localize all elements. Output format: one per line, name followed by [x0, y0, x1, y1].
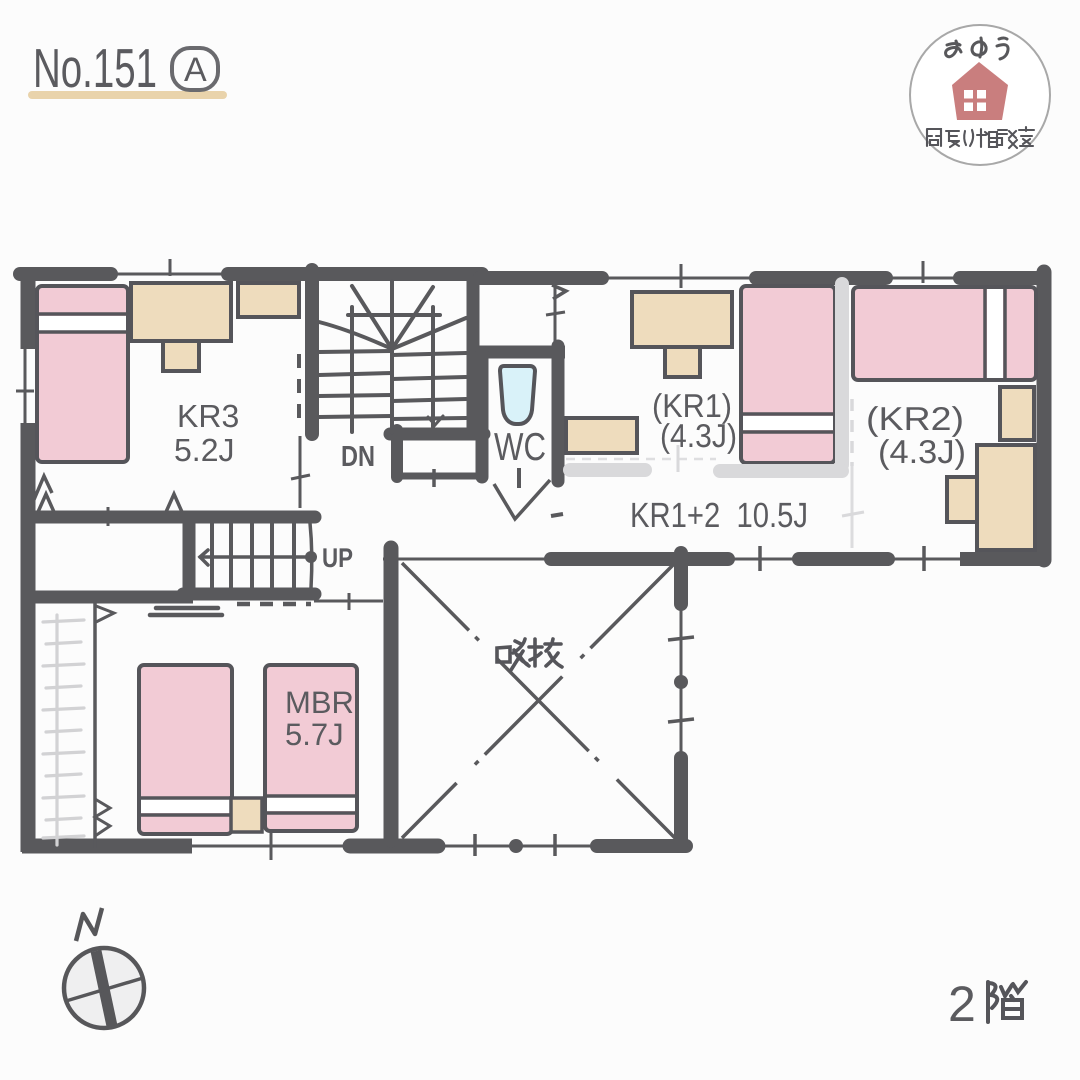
svg-text:(4.3J): (4.3J) — [660, 417, 737, 454]
svg-text:No.151: No.151 — [33, 37, 157, 99]
svg-text:5.2J: 5.2J — [174, 432, 234, 468]
svg-text:KR1+2 10.5J: KR1+2 10.5J — [630, 496, 808, 535]
svg-text:KR3: KR3 — [177, 398, 239, 434]
svg-text:A: A — [184, 51, 207, 89]
svg-text:(KR2): (KR2) — [866, 400, 964, 437]
svg-text:DN: DN — [341, 441, 375, 473]
svg-text:WC: WC — [494, 426, 546, 469]
svg-text:UP: UP — [322, 543, 353, 573]
svg-text:2: 2 — [948, 976, 976, 1032]
svg-text:MBR: MBR — [285, 685, 354, 720]
svg-text:5.7J: 5.7J — [285, 717, 344, 752]
svg-text:(4.3J): (4.3J) — [878, 433, 966, 470]
